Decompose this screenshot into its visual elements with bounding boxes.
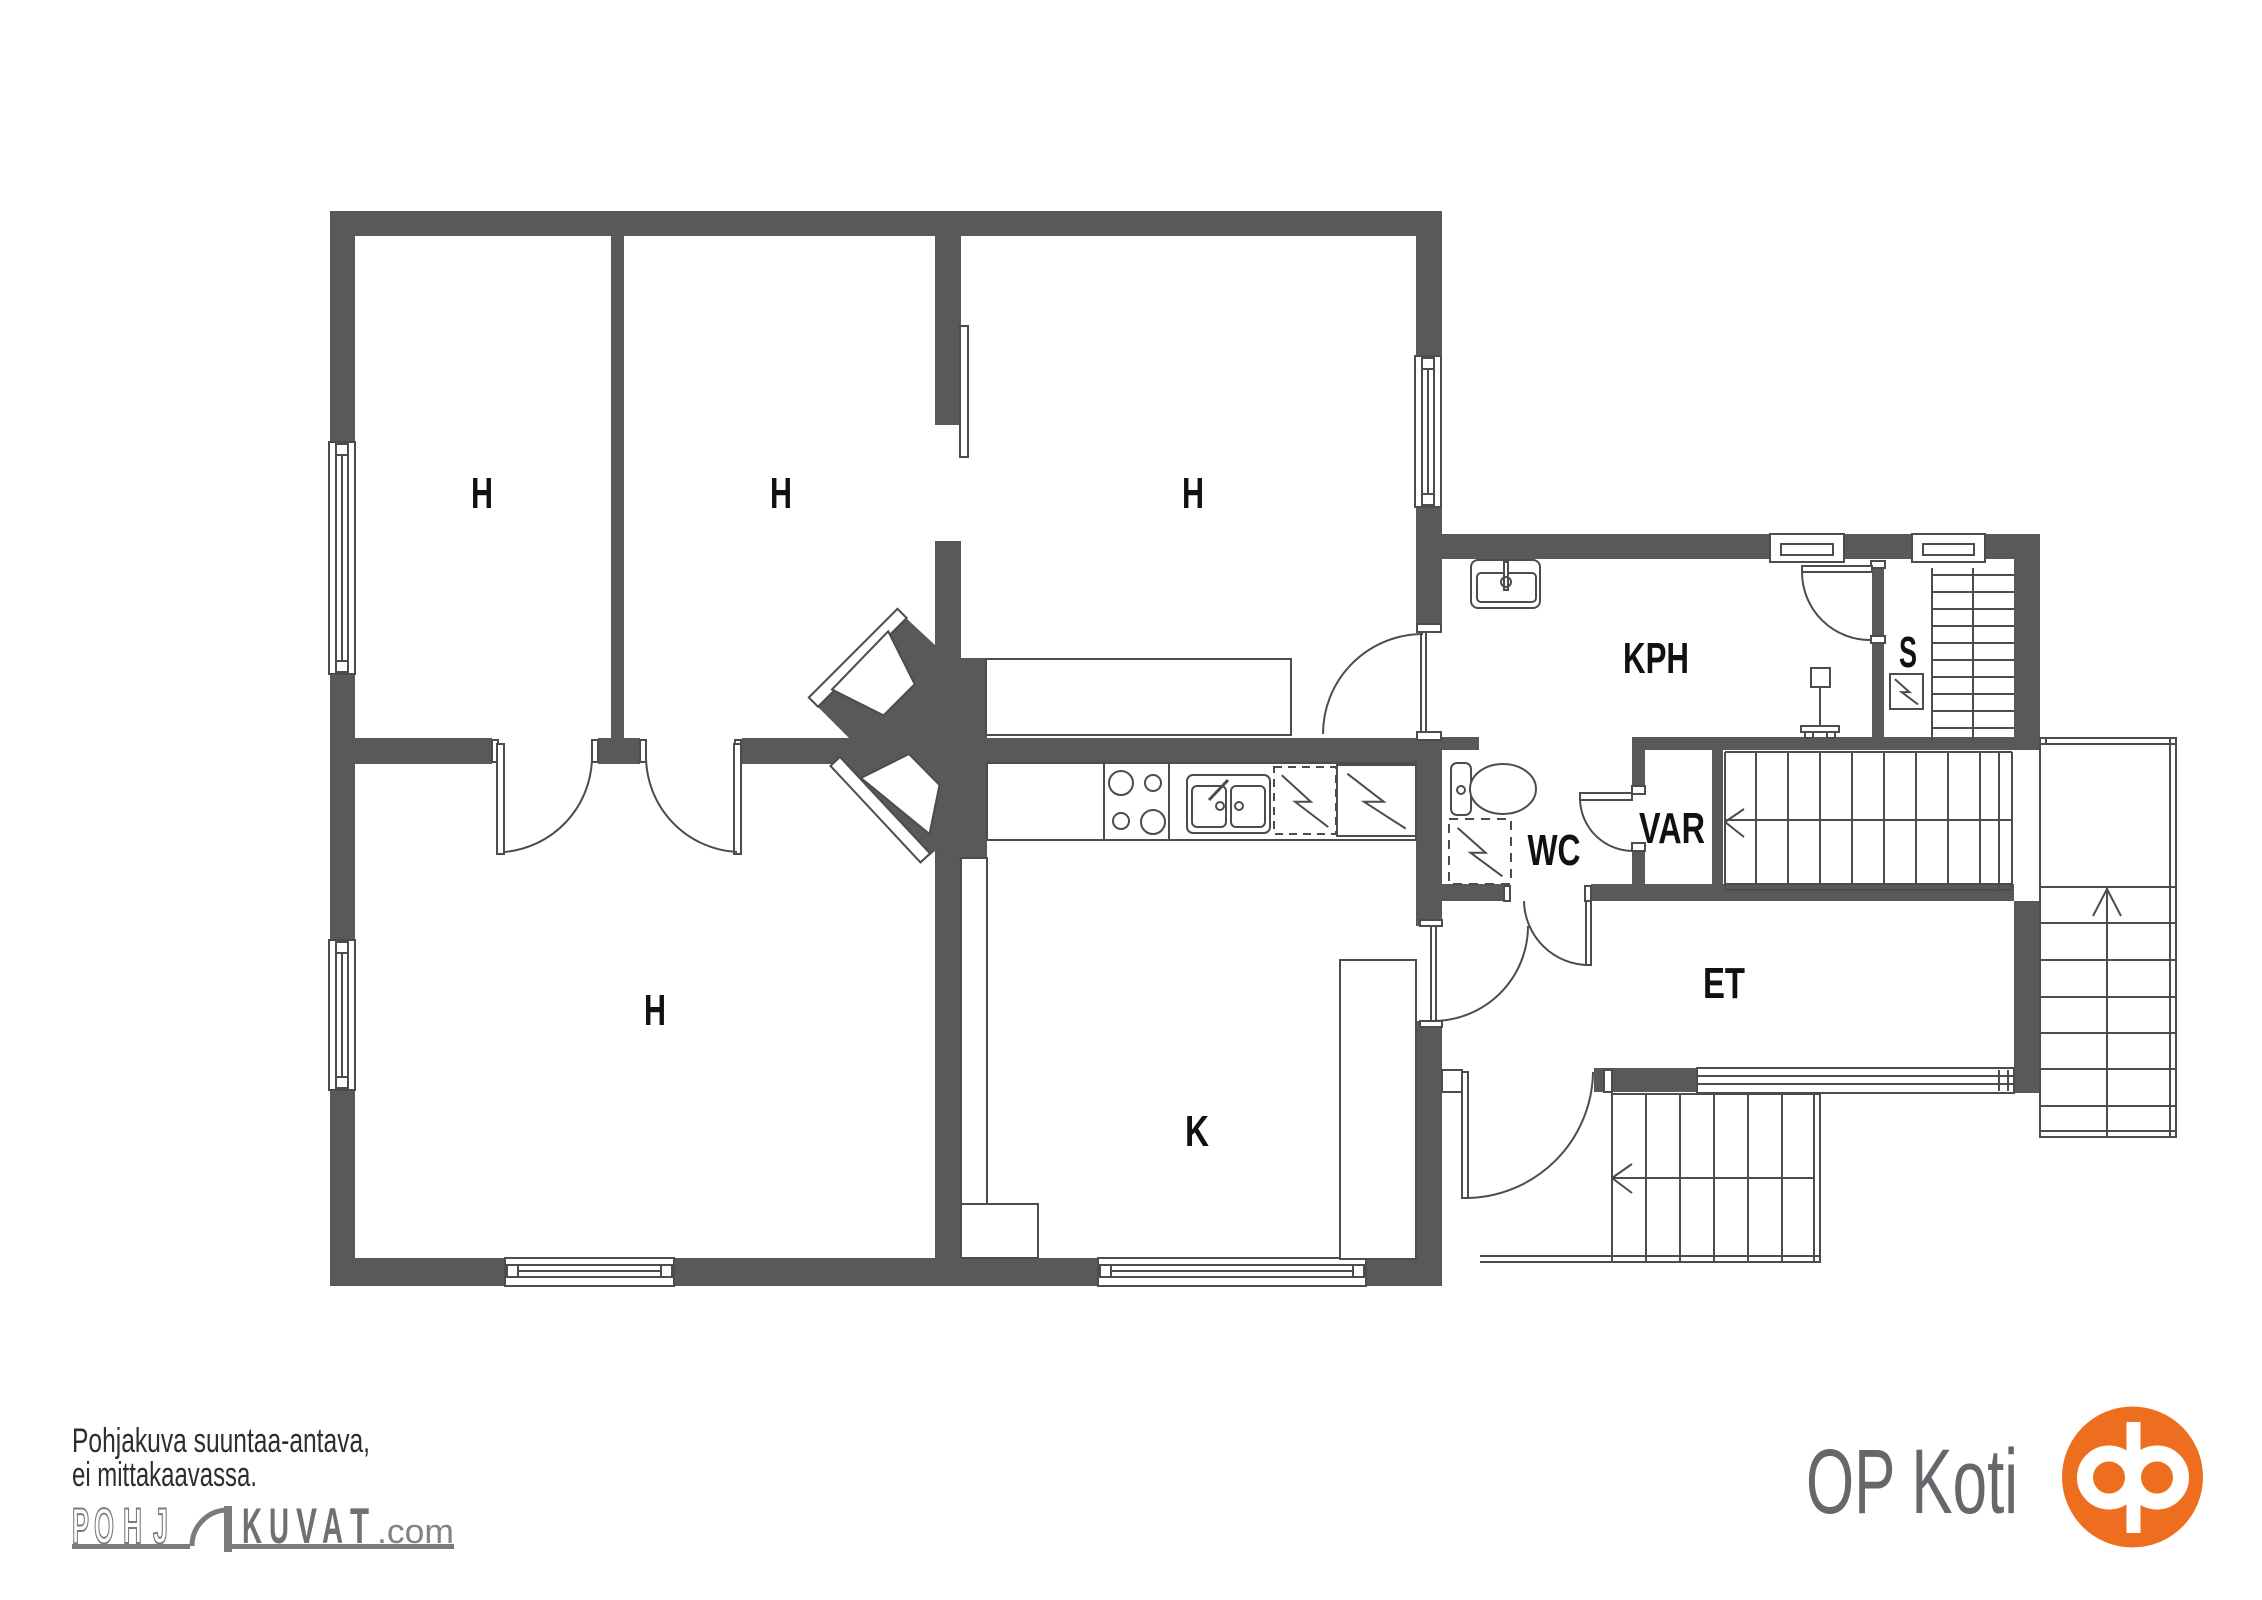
svg-text:KPH: KPH [1623,634,1689,683]
svg-text:H: H [770,469,792,518]
svg-text:Pohjakuva suuntaa-antava,: Pohjakuva suuntaa-antava, [72,1422,370,1460]
svg-text:K: K [1185,1107,1209,1156]
svg-text:H: H [1182,469,1204,518]
svg-text:H: H [471,469,493,518]
svg-text:ET: ET [1703,959,1745,1008]
svg-text:OP Koti: OP Koti [1806,1431,2018,1533]
svg-text:WC: WC [1528,826,1581,875]
svg-text:ei mittakaavassa.: ei mittakaavassa. [72,1456,257,1494]
svg-text:S: S [1899,628,1917,677]
svg-text:VAR: VAR [1639,804,1705,853]
svg-text:H: H [644,986,666,1035]
